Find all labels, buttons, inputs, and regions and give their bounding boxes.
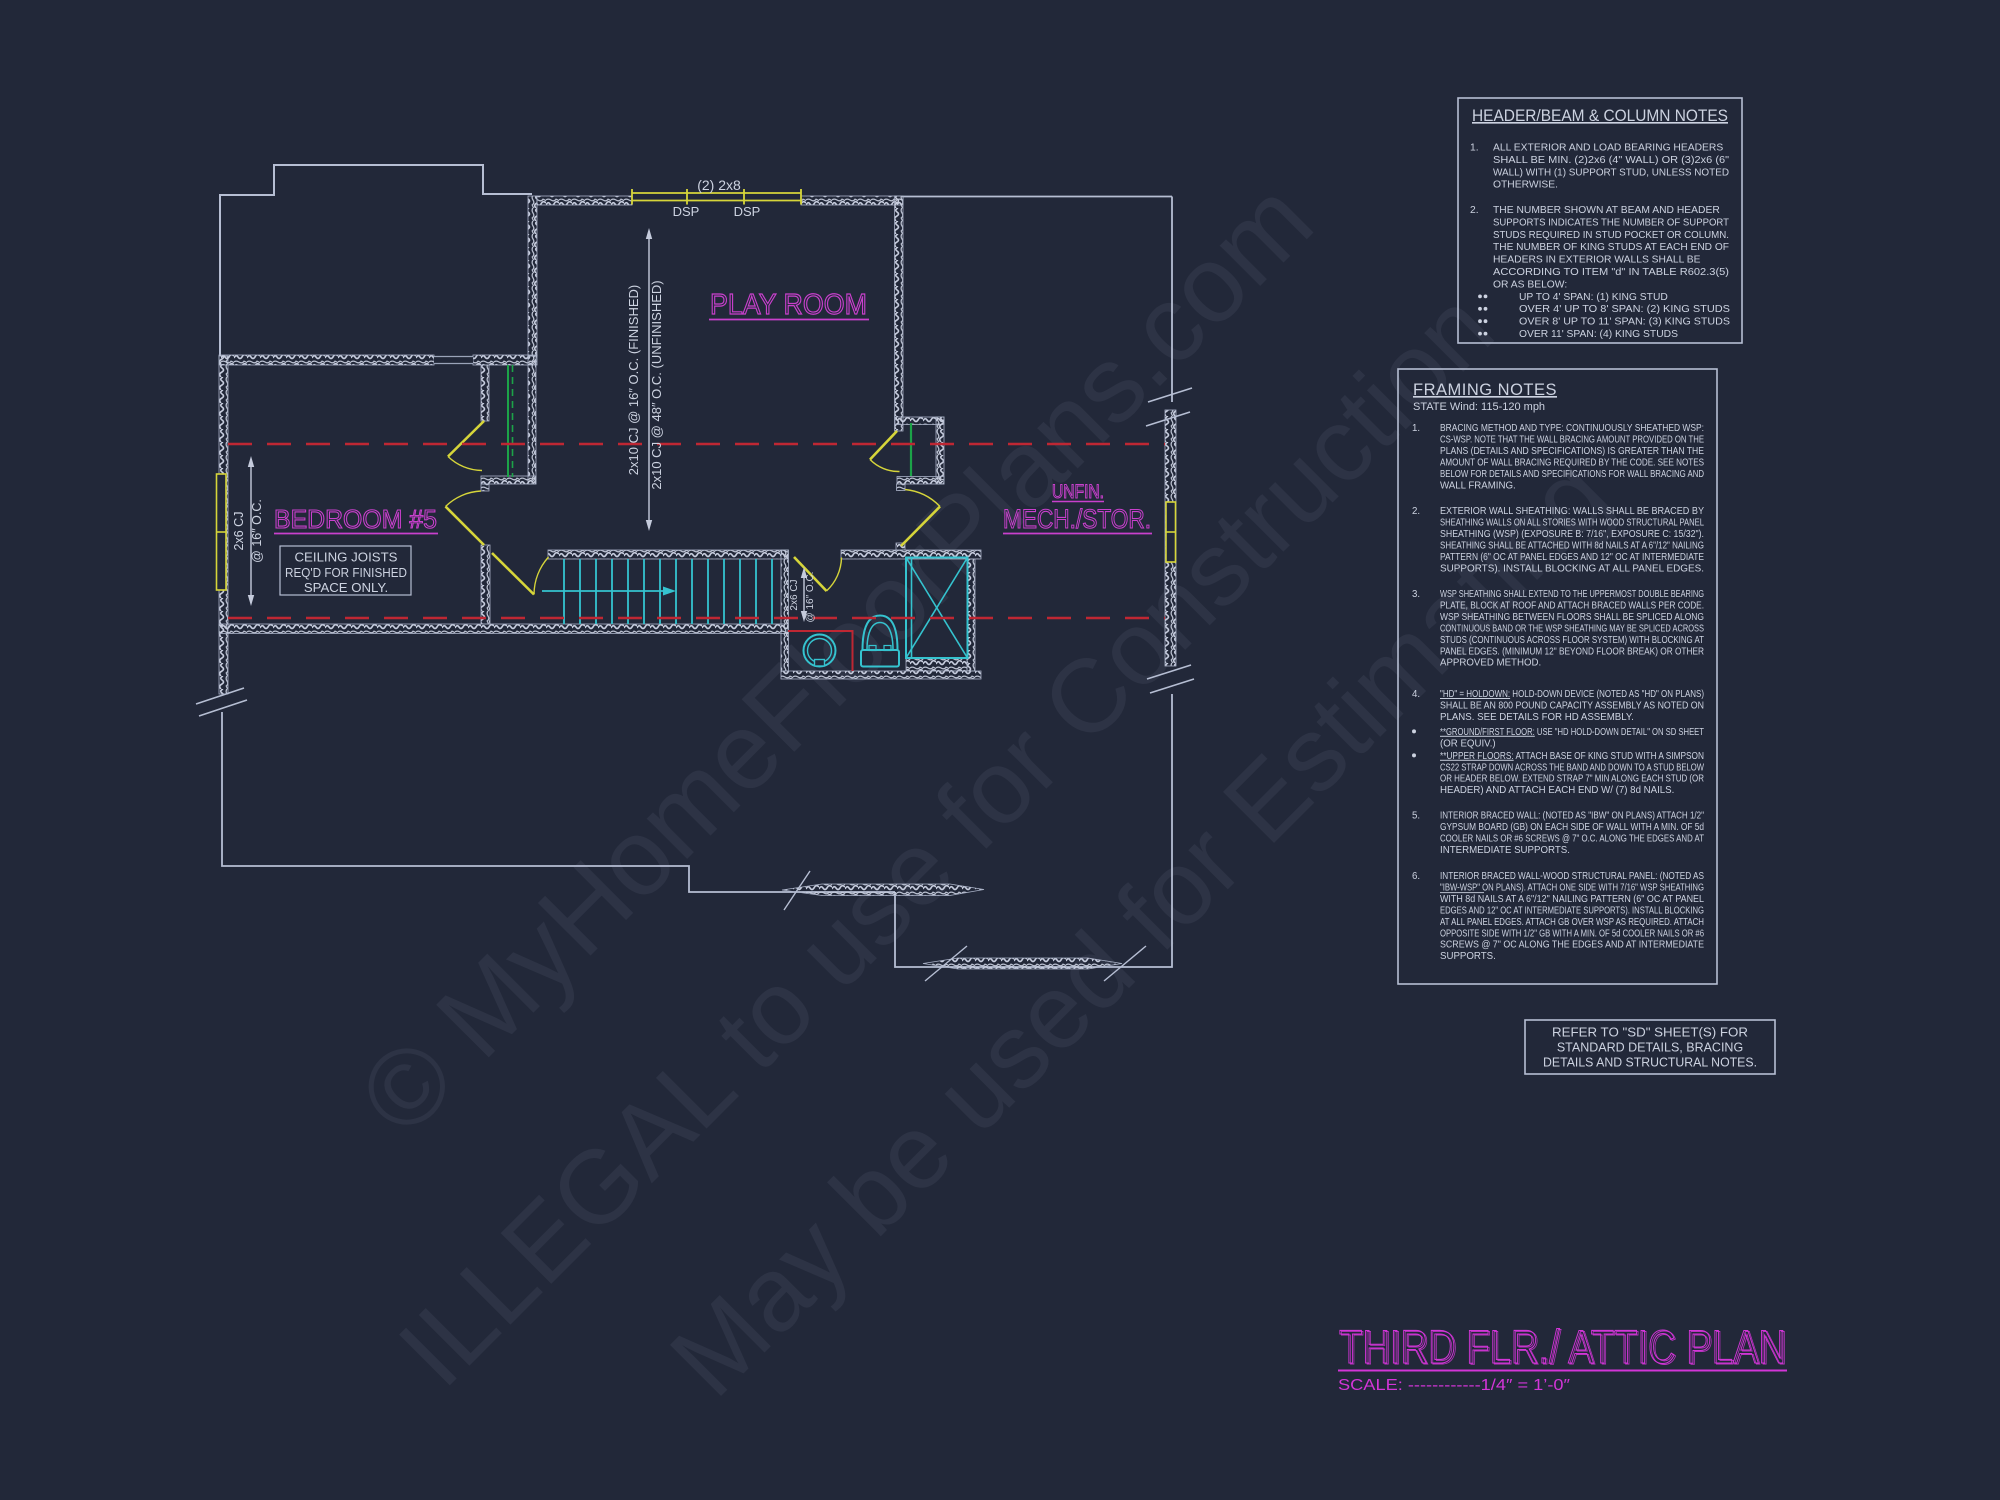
svg-text:PANEL EDGES. (MINIMUM 12" BEYO: PANEL EDGES. (MINIMUM 12" BEYOND FLOOR B… [1440,646,1704,657]
svg-text:ACCORDING TO ITEM "d" IN TABLE: ACCORDING TO ITEM "d" IN TABLE R602.3(5) [1493,267,1729,278]
svg-text:MECH./STOR.: MECH./STOR. [1003,504,1151,534]
svg-text:@ 16″ O.C.: @ 16″ O.C. [250,499,264,563]
svg-text:SHEATHING WALLS ON ALL STORIES: SHEATHING WALLS ON ALL STORIES WITH WOOD… [1440,517,1704,528]
svg-text:SCALE: ------------1/4″ = 1’-0: SCALE: ------------1/4″ = 1’-0″ [1338,1377,1571,1394]
svg-text:SHEATHING (WSP) (EXPOSURE B: 7: SHEATHING (WSP) (EXPOSURE B: 7/16", EXPO… [1440,529,1704,540]
svg-text:(2) 2x8: (2) 2x8 [697,177,741,193]
svg-text:COOLER NAILS OR #6 SCREWS @ 7": COOLER NAILS OR #6 SCREWS @ 7" O.C. ALON… [1440,833,1704,844]
svg-text:UP TO 4' SPAN: (1) KING STUD: UP TO 4' SPAN: (1) KING STUD [1519,292,1668,303]
svg-text:WALL) WITH (1) SUPPORT STUD, U: WALL) WITH (1) SUPPORT STUD, UNLESS NOTE… [1493,167,1729,178]
svg-text:EXTERIOR WALL SHEATHING: WALLS: EXTERIOR WALL SHEATHING: WALLS SHALL BE … [1440,506,1705,517]
svg-text:BELOW FOR DETAILS AND SPECIFIC: BELOW FOR DETAILS AND SPECIFICATIONS FOR… [1440,469,1704,480]
svg-text:SPACE ONLY.: SPACE ONLY. [304,580,388,595]
svg-text:6.: 6. [1412,871,1420,882]
svg-text:REFER TO "SD" SHEET(S) FOR: REFER TO "SD" SHEET(S) FOR [1552,1026,1748,1040]
svg-text:STUDS REQUIRED IN STUD POCKET: STUDS REQUIRED IN STUD POCKET OR COLUMN. [1493,230,1729,241]
svg-text:"IBW-WSP" ON PLANS). ATTACH ON: "IBW-WSP" ON PLANS). ATTACH ONE SIDE WIT… [1440,882,1704,893]
svg-text:FRAMING NOTES: FRAMING NOTES [1413,381,1557,399]
svg-text:THE NUMBER SHOWN AT BEAM AND H: THE NUMBER SHOWN AT BEAM AND HEADER [1493,205,1720,216]
svg-text:"HD" = HOLDOWN: HOLD-DOWN DEVI: "HD" = HOLDOWN: HOLD-DOWN DEVICE (NOTED … [1440,689,1704,700]
svg-text:SHALL BE MIN. (2)2x6 (4" WALL): SHALL BE MIN. (2)2x6 (4" WALL) OR (3)2x6… [1493,155,1729,166]
svg-text:STANDARD DETAILS, BRACING: STANDARD DETAILS, BRACING [1557,1041,1743,1055]
svg-text:OPPOSITE SIDE WITH 1/2" GB WIT: OPPOSITE SIDE WITH 1/2" GB WITH A MIN. O… [1440,928,1704,939]
svg-text:BRACING METHOD AND TYPE: CONTI: BRACING METHOD AND TYPE: CONTINUOUSLY SH… [1440,423,1704,434]
svg-text:EDGES AND 12" OC AT INTERMEDIA: EDGES AND 12" OC AT INTERMEDIATE SUPPORT… [1440,905,1704,916]
svg-text:2x6 CJ: 2x6 CJ [232,512,246,551]
svg-text:OVER 8' UP TO 11' SPAN: (3) KI: OVER 8' UP TO 11' SPAN: (3) KING STUDS [1519,317,1730,328]
svg-text:4.: 4. [1412,689,1420,700]
svg-text:5.: 5. [1412,811,1420,822]
svg-text:WITH 8d NAILS AT A 6"/12" NAIL: WITH 8d NAILS AT A 6"/12" NAILING PATTER… [1440,894,1705,905]
svg-text:CEILING JOISTS: CEILING JOISTS [295,550,398,565]
svg-text:UNFIN.: UNFIN. [1052,482,1104,503]
svg-text:WSP SHEATHING BETWEEN FLOORS S: WSP SHEATHING BETWEEN FLOORS SHALL BE SP… [1440,612,1704,623]
svg-text:OR AS BELOW:: OR AS BELOW: [1493,279,1567,290]
svg-text:2x10 CJ @ 16″ O.C. (FINISHED): 2x10 CJ @ 16″ O.C. (FINISHED) [626,285,641,475]
svg-text:2.: 2. [1412,506,1420,517]
svg-text:**UPPER FLOORS: ATTACH BASE OF: **UPPER FLOORS: ATTACH BASE OF KING STUD… [1440,751,1704,762]
svg-text:INTERMEDIATE SUPPORTS.: INTERMEDIATE SUPPORTS. [1440,845,1570,856]
svg-text:@ 16″ O.C.: @ 16″ O.C. [805,572,816,623]
svg-text:OVER 4' UP TO 8' SPAN: (2) KIN: OVER 4' UP TO 8' SPAN: (2) KING STUDS [1519,304,1730,315]
svg-text:HEADER/BEAM & COLUMN NOTES: HEADER/BEAM & COLUMN NOTES [1472,107,1728,125]
svg-text:PLANS. SEE DETAILS FOR HD ASSE: PLANS. SEE DETAILS FOR HD ASSEMBLY. [1440,712,1634,723]
svg-text:SHEATHING SHALL BE ATTACHED WI: SHEATHING SHALL BE ATTACHED WITH 8d NAIL… [1440,540,1704,551]
svg-text:REQ'D FOR FINISHED: REQ'D FOR FINISHED [285,565,407,580]
svg-text:PLANS (DETAILS AND SPECIFICATI: PLANS (DETAILS AND SPECIFICATIONS) IS GR… [1440,446,1704,457]
svg-text:HEADERS IN EXTERIOR WALLS SHAL: HEADERS IN EXTERIOR WALLS SHALL BE [1493,255,1701,266]
svg-text:SUPPORTS INDICATES THE NUMBER: SUPPORTS INDICATES THE NUMBER OF SUPPORT [1493,217,1730,228]
svg-text:CONTINUOUS BAND OR THE WSP SHE: CONTINUOUS BAND OR THE WSP SHEATHING MAY… [1440,623,1704,634]
svg-text:CS-WSP. NOTE THAT THE WALL BRA: CS-WSP. NOTE THAT THE WALL BRACING AMOUN… [1440,434,1704,445]
svg-text:SUPPORTS.: SUPPORTS. [1440,951,1496,962]
svg-text:GYPSUM BOARD (GB) ON EACH SIDE: GYPSUM BOARD (GB) ON EACH SIDE OF WALL W… [1440,822,1704,833]
svg-text:3.: 3. [1412,589,1420,600]
svg-text:(OR EQUIV.): (OR EQUIV.) [1440,738,1496,749]
svg-text:DSP: DSP [734,204,761,219]
svg-text:THE NUMBER OF KING STUDS AT EA: THE NUMBER OF KING STUDS AT EACH END OF [1493,242,1729,253]
svg-text:OTHERWISE.: OTHERWISE. [1493,180,1558,191]
svg-text:STATE Wind: 115-120 mph: STATE Wind: 115-120 mph [1413,401,1545,413]
svg-text:INTERIOR BRACED WALL: (NOTED A: INTERIOR BRACED WALL: (NOTED AS "IBW" ON… [1440,811,1704,822]
svg-text:AT ALL PANEL EDGES. ATTACH GB: AT ALL PANEL EDGES. ATTACH GB OVER WSP A… [1440,917,1704,928]
svg-text:2x10 CJ @ 48″ O.C. (UNFINISHED: 2x10 CJ @ 48″ O.C. (UNFINISHED) [649,280,664,489]
svg-text:WSP SHEATHING SHALL EXTEND TO: WSP SHEATHING SHALL EXTEND TO THE UPPERM… [1440,589,1704,600]
svg-text:HEADER) AND ATTACH EACH END W/: HEADER) AND ATTACH EACH END W/ (7) 8d NA… [1440,785,1674,796]
svg-text:DSP: DSP [673,204,700,219]
svg-text:1.: 1. [1470,143,1479,154]
svg-text:PATTERN (6" OC AT PANEL EDGES: PATTERN (6" OC AT PANEL EDGES AND 12" OC… [1440,552,1704,563]
svg-text:WALL FRAMING.: WALL FRAMING. [1440,480,1516,491]
svg-text:PLATE, BLOCK AT ROOF AND ATTAC: PLATE, BLOCK AT ROOF AND ATTACH BRACED W… [1440,600,1704,611]
svg-text:OR HEADER BELOW. EXTEND STRAP: OR HEADER BELOW. EXTEND STRAP 7" MIN ALO… [1440,774,1704,785]
svg-text:STUDS (CONTINUOUS ACROSS FLOOR: STUDS (CONTINUOUS ACROSS FLOOR SYSTEM) W… [1440,635,1704,646]
svg-text:**GROUND/FIRST FLOOR: USE "HD: **GROUND/FIRST FLOOR: USE "HD HOLD-DOWN … [1440,727,1704,738]
svg-text:CS22 STRAP DOWN ACROSS THE BAN: CS22 STRAP DOWN ACROSS THE BAND AND DOWN… [1440,762,1705,773]
svg-text:SHALL BE AN 800 POUND CAPACITY: SHALL BE AN 800 POUND CAPACITY ASSEMBLY … [1440,700,1704,711]
svg-text:APPROVED METHOD.: APPROVED METHOD. [1440,658,1541,669]
svg-text:DETAILS AND STRUCTURAL NOTES.: DETAILS AND STRUCTURAL NOTES. [1543,1056,1757,1070]
svg-text:AMOUNT OF WALL BRACING REQUIRE: AMOUNT OF WALL BRACING REQUIRED BY THE C… [1440,457,1704,468]
svg-text:1.: 1. [1412,423,1420,434]
svg-text:SCREWS @ 7" OC ALONG THE EDGES: SCREWS @ 7" OC ALONG THE EDGES AND AT IN… [1440,940,1704,951]
svg-text:OVER 11' SPAN: (4) KING STUDS: OVER 11' SPAN: (4) KING STUDS [1519,329,1678,340]
svg-text:PLAY ROOM: PLAY ROOM [710,289,867,321]
svg-text:2.: 2. [1470,205,1479,216]
svg-text:ALL EXTERIOR AND LOAD BEARING: ALL EXTERIOR AND LOAD BEARING HEADERS [1493,143,1723,154]
svg-text:2x6 CJ: 2x6 CJ [789,579,800,610]
svg-text:SUPPORTS). INSTALL BLOCKING AT: SUPPORTS). INSTALL BLOCKING AT ALL PANEL… [1440,563,1704,574]
svg-text:BEDROOM #5: BEDROOM #5 [274,504,437,534]
svg-text:THIRD FLR./ ATTIC PLAN: THIRD FLR./ ATTIC PLAN [1341,1321,1788,1374]
svg-text:INTERIOR BRACED WALL-WOOD STRU: INTERIOR BRACED WALL-WOOD STRUCTURAL PAN… [1440,871,1704,882]
